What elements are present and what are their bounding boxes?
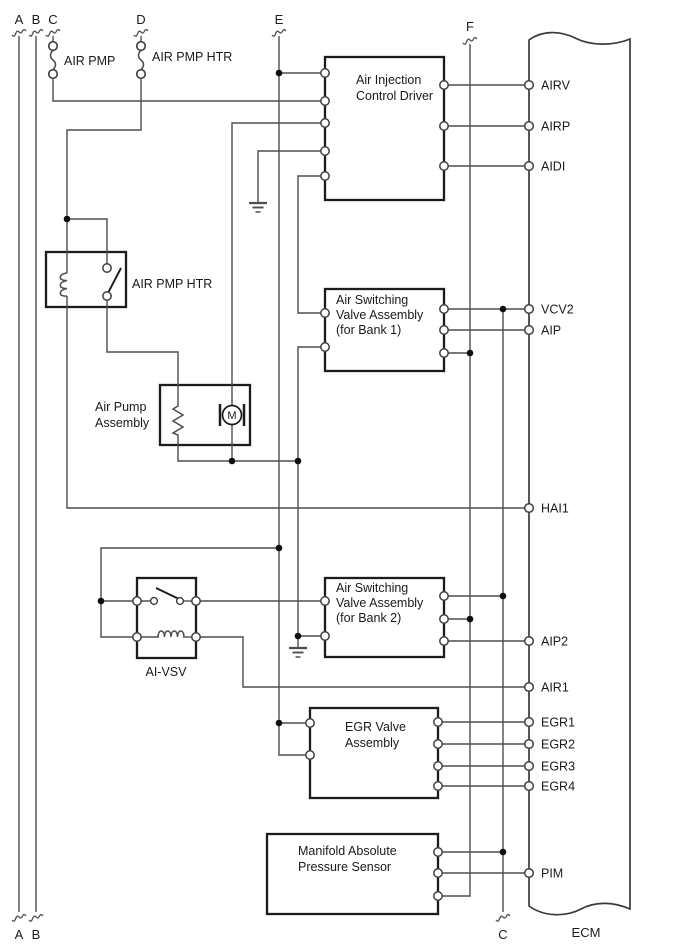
ecm-pin-PIM bbox=[525, 869, 534, 878]
wire-break-icon bbox=[12, 915, 26, 922]
air-injection-control-driver-label: Air Injection bbox=[356, 73, 421, 87]
wire-break-icon bbox=[134, 30, 148, 37]
fuse-air-pmp-htr-element bbox=[139, 50, 144, 70]
terminal-circle bbox=[321, 119, 329, 127]
air-switching-valve-bank2-label: (for Bank 2) bbox=[336, 611, 401, 625]
ai-vsv-box bbox=[137, 578, 196, 658]
egr-valve-assembly-label: Assembly bbox=[345, 736, 400, 750]
terminal-circle bbox=[192, 597, 200, 605]
connector-label-top-E: E bbox=[275, 12, 284, 27]
wiring-diagram-page: ECMAir InjectionControl DriverAir Switch… bbox=[0, 0, 688, 949]
terminal-circle bbox=[321, 97, 329, 105]
ecm-pin-label-EGR2: EGR2 bbox=[541, 738, 575, 752]
terminal-circle bbox=[306, 719, 314, 727]
ecm-pin-AIP bbox=[525, 326, 534, 335]
wire-break-icon bbox=[46, 30, 60, 37]
terminal-circle bbox=[321, 597, 329, 605]
fuse-air-pmp-label: AIR PMP bbox=[64, 54, 115, 68]
ecm-pin-label-AIP2: AIP2 bbox=[541, 635, 568, 649]
junction-dot bbox=[64, 216, 71, 223]
terminal-circle bbox=[434, 762, 442, 770]
junction-dot bbox=[98, 598, 105, 605]
wire-break-icon bbox=[463, 38, 477, 45]
terminal-circle bbox=[434, 718, 442, 726]
ecm-pin-label-VCV2: VCV2 bbox=[541, 303, 574, 317]
terminal-circle bbox=[321, 147, 329, 155]
air-pump-assembly-label: Air Pump bbox=[95, 400, 146, 414]
fuse-air-pmp-htr-label: AIR PMP HTR bbox=[152, 50, 232, 64]
terminal-circle bbox=[440, 81, 448, 89]
terminal-circle bbox=[434, 869, 442, 877]
ecm-pin-label-AIDI: AIDI bbox=[541, 160, 565, 174]
wire-26 bbox=[279, 723, 310, 755]
air-switching-valve-bank1-label: Valve Assembly bbox=[336, 308, 424, 322]
motor-label: M bbox=[227, 410, 236, 422]
terminal-circle bbox=[137, 70, 145, 78]
air-switching-valve-bank2-label: Valve Assembly bbox=[336, 596, 424, 610]
ecm-pin-EGR3 bbox=[525, 762, 534, 771]
connector-label-top-D: D bbox=[136, 12, 145, 27]
junction-dot bbox=[276, 720, 283, 727]
terminal-circle bbox=[440, 122, 448, 130]
connector-label-bottom-B: B bbox=[32, 927, 41, 942]
junction-dot bbox=[500, 593, 507, 600]
terminal-circle bbox=[321, 632, 329, 640]
switch-contact-circle bbox=[177, 598, 184, 605]
terminal-circle bbox=[321, 343, 329, 351]
terminal-circle bbox=[321, 69, 329, 77]
switch-contact-circle bbox=[151, 598, 158, 605]
terminal-circle bbox=[321, 172, 329, 180]
manifold-absolute-pressure-sensor-label: Pressure Sensor bbox=[298, 860, 391, 874]
terminal-circle bbox=[434, 782, 442, 790]
terminal-circle bbox=[137, 42, 145, 50]
terminal-circle bbox=[440, 305, 448, 313]
air-injection-control-driver-label: Control Driver bbox=[356, 89, 433, 103]
connector-label-top-A: A bbox=[15, 12, 24, 27]
ecm-pin-label-PIM: PIM bbox=[541, 867, 563, 881]
ecm-pin-label-EGR3: EGR3 bbox=[541, 760, 575, 774]
ai-vsv-label: AI-VSV bbox=[146, 665, 188, 679]
connector-label-top-C: C bbox=[48, 12, 57, 27]
ecm-pin-EGR4 bbox=[525, 782, 534, 791]
ecm-pin-AIRP bbox=[525, 122, 534, 131]
terminal-circle bbox=[103, 264, 111, 272]
terminal-circle bbox=[440, 349, 448, 357]
connector-label-top-F: F bbox=[466, 19, 474, 34]
air-switching-valve-bank1-label: (for Bank 1) bbox=[336, 323, 401, 337]
terminal-circle bbox=[49, 42, 57, 50]
terminal-circle bbox=[440, 615, 448, 623]
ecm-pin-label-AIRV: AIRV bbox=[541, 79, 571, 93]
junction-dot bbox=[295, 458, 302, 465]
wire-break-icon bbox=[29, 915, 43, 922]
air-pump-assembly-label: Assembly bbox=[95, 416, 150, 430]
ecm-pin-VCV2 bbox=[525, 305, 534, 314]
junction-dot bbox=[467, 350, 474, 357]
wire-break-icon bbox=[272, 30, 286, 37]
terminal-circle bbox=[49, 70, 57, 78]
ecm-pin-label-HAI1: HAI1 bbox=[541, 502, 569, 516]
junction-dot bbox=[276, 70, 283, 77]
junction-dot bbox=[229, 458, 236, 465]
ecm-pin-EGR1 bbox=[525, 718, 534, 727]
wire-5 bbox=[67, 77, 141, 273]
connector-label-top-B: B bbox=[32, 12, 41, 27]
junction-dot bbox=[467, 616, 474, 623]
wire-13 bbox=[298, 176, 325, 313]
fuse-air-pmp-element bbox=[51, 50, 56, 70]
terminal-circle bbox=[192, 633, 200, 641]
ecm-pin-label-EGR1: EGR1 bbox=[541, 716, 575, 730]
ecm-pin-label-AIP: AIP bbox=[541, 324, 561, 338]
terminal-circle bbox=[306, 751, 314, 759]
terminal-circle bbox=[440, 592, 448, 600]
wire-break-icon bbox=[496, 915, 510, 922]
wiring-diagram: ECMAir InjectionControl DriverAir Switch… bbox=[0, 0, 688, 949]
air-switching-valve-bank1-label: Air Switching bbox=[336, 293, 408, 307]
terminal-circle bbox=[440, 326, 448, 334]
wire-break-icon bbox=[29, 30, 43, 37]
ecm-pin-AIP2 bbox=[525, 637, 534, 646]
ecm-pin-label-AIRP: AIRP bbox=[541, 120, 570, 134]
ecm-pin-EGR2 bbox=[525, 740, 534, 749]
ecm-pin-label-AIR1: AIR1 bbox=[541, 681, 569, 695]
connector-label-bottom-C: C bbox=[498, 927, 507, 942]
terminal-circle bbox=[434, 892, 442, 900]
ecm-label: ECM bbox=[572, 925, 601, 940]
ecm-pin-label-EGR4: EGR4 bbox=[541, 780, 575, 794]
junction-dot bbox=[276, 545, 283, 552]
egr-valve-assembly-label: EGR Valve bbox=[345, 720, 406, 734]
air-switching-valve-bank2-label: Air Switching bbox=[336, 581, 408, 595]
ecm-pin-AIR1 bbox=[525, 683, 534, 692]
junction-dot bbox=[500, 849, 507, 856]
manifold-absolute-pressure-sensor-label: Manifold Absolute bbox=[298, 844, 397, 858]
connector-label-bottom-A: A bbox=[15, 927, 24, 942]
terminal-circle bbox=[434, 848, 442, 856]
wire-3 bbox=[53, 77, 325, 101]
terminal-circle bbox=[103, 292, 111, 300]
junction-dot bbox=[295, 633, 302, 640]
ecm-pin-HAI1 bbox=[525, 504, 534, 513]
terminal-circle bbox=[133, 633, 141, 641]
terminal-circle bbox=[434, 740, 442, 748]
air-pmp-htr-relay-label: AIR PMP HTR bbox=[132, 277, 212, 291]
terminal-circle bbox=[440, 162, 448, 170]
terminal-circle bbox=[133, 597, 141, 605]
ecm-pin-AIDI bbox=[525, 162, 534, 171]
terminal-circle bbox=[440, 637, 448, 645]
wire-break-icon bbox=[12, 30, 26, 37]
terminal-circle bbox=[321, 309, 329, 317]
junction-dot bbox=[500, 306, 507, 313]
ecm-pin-AIRV bbox=[525, 81, 534, 90]
